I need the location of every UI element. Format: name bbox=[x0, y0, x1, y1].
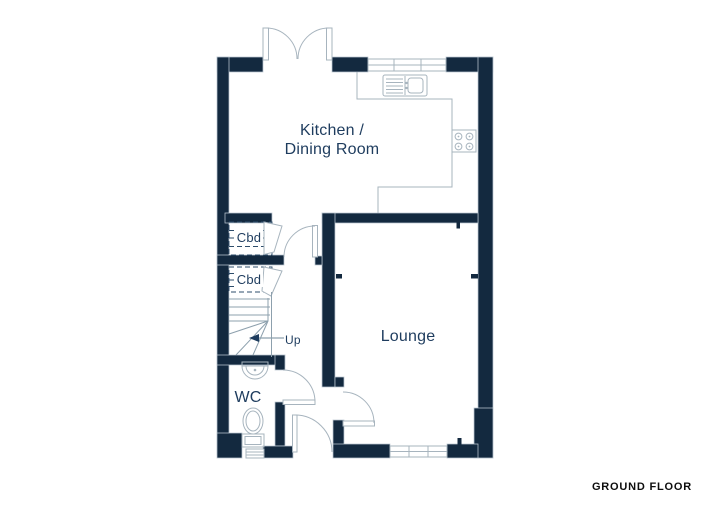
cupboard-1-label: Cbd bbox=[231, 231, 267, 245]
lounge-label: Lounge bbox=[358, 327, 458, 346]
wc-label: WC bbox=[226, 388, 270, 407]
wall-wc-right bbox=[275, 402, 285, 446]
french-doors-icon bbox=[263, 28, 332, 60]
wall-wc-bottom-block bbox=[217, 433, 242, 458]
tick-lounge-top bbox=[457, 222, 461, 229]
floor-plan-page: Kitchen / Dining Room Lounge WC Cbd Cbd … bbox=[0, 0, 718, 518]
wall-wc-jamb bbox=[275, 355, 285, 370]
tick-lounge-bottom bbox=[458, 438, 462, 445]
kitchen-label-line1: Kitchen / bbox=[242, 121, 422, 140]
lounge-window-icon bbox=[390, 446, 447, 457]
wall-kitchen-bottom-left bbox=[225, 213, 272, 223]
wall-lounge-top bbox=[322, 213, 478, 223]
tick-lounge-left bbox=[336, 274, 342, 279]
kitchen-label: Kitchen / Dining Room bbox=[242, 121, 422, 159]
hob-icon bbox=[452, 130, 476, 152]
floor-title: GROUND FLOOR bbox=[540, 481, 692, 493]
stairs-icon bbox=[229, 292, 272, 357]
wall-top-mid bbox=[332, 57, 368, 72]
wc-door-swing-icon bbox=[283, 370, 315, 405]
front-door-swing-icon bbox=[293, 415, 333, 452]
wc-window-icon bbox=[246, 449, 264, 458]
wall-cupboard-divider bbox=[217, 255, 284, 265]
wall-lounge-bottom-right bbox=[447, 444, 478, 458]
wall-wc-bottom-mid bbox=[263, 446, 293, 458]
stairs-up-label: Up bbox=[285, 331, 315, 350]
tick-lounge-right bbox=[471, 274, 478, 279]
doors bbox=[263, 28, 375, 452]
hall-door-swing-icon bbox=[284, 226, 318, 258]
lounge-door-swing-icon bbox=[343, 392, 375, 426]
wall-lounge-door-stub bbox=[333, 420, 344, 446]
wall-lounge-left bbox=[322, 213, 335, 387]
kitchen-label-line2: Dining Room bbox=[242, 140, 422, 159]
wall-lounge-bottom-left bbox=[333, 444, 390, 458]
cupboard-2-label: Cbd bbox=[231, 273, 267, 287]
wall-right bbox=[478, 57, 493, 458]
wall-lounge-door-jamb bbox=[335, 377, 344, 387]
floor-plan-drawing bbox=[0, 0, 718, 518]
toilet-icon bbox=[242, 408, 264, 447]
sink-icon bbox=[383, 75, 427, 96]
kitchen-window-icon bbox=[368, 59, 446, 71]
